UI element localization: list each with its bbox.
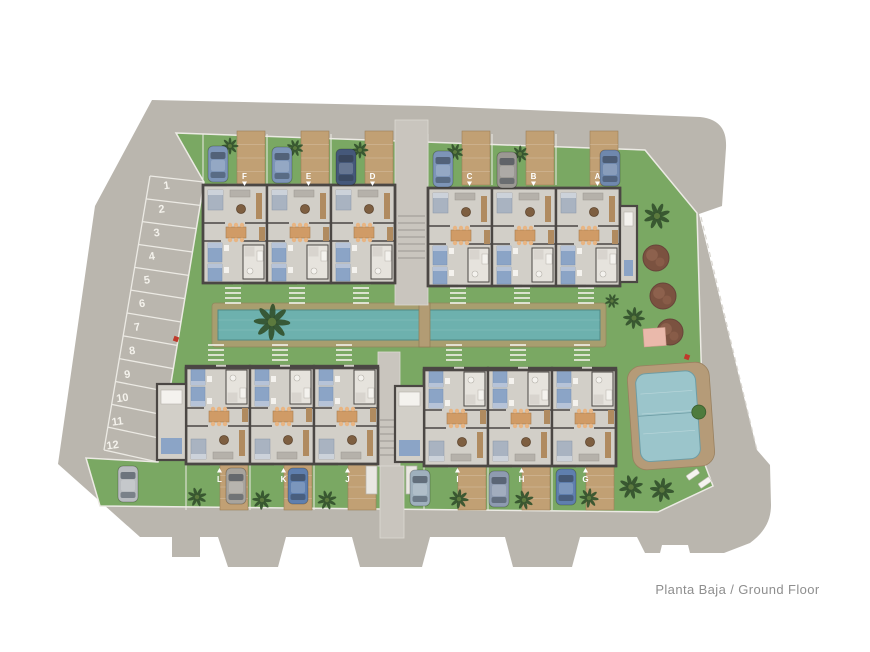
pool-bridge — [419, 303, 430, 347]
tv-cabinet — [481, 196, 487, 222]
central-walkway-bottom-neck — [380, 466, 404, 538]
bed-pillow — [493, 383, 507, 387]
tv-cabinet — [320, 193, 326, 219]
wing-bed — [399, 440, 420, 456]
dining-chair — [356, 238, 360, 242]
nightstand — [577, 248, 582, 254]
dining-chair — [529, 241, 533, 245]
nightstand — [271, 398, 276, 404]
dining-chair — [525, 409, 529, 413]
coffee-table — [458, 438, 467, 447]
dining-table — [451, 230, 471, 241]
dining-chair — [465, 241, 469, 245]
bed-pillow — [255, 401, 269, 406]
nightstand — [288, 267, 293, 273]
toilet — [311, 268, 317, 274]
tree-texture — [669, 331, 678, 340]
coffee-table — [237, 205, 246, 214]
toilet — [358, 375, 364, 381]
nightstand — [207, 398, 212, 404]
car-rear-window — [500, 178, 515, 184]
dining-chair — [461, 409, 465, 413]
car — [433, 151, 453, 187]
dining-chair — [287, 407, 291, 411]
dining-chair — [211, 422, 215, 426]
toilet — [536, 271, 542, 277]
dining-chair — [529, 226, 533, 230]
sink — [546, 254, 552, 264]
sofa — [230, 190, 250, 197]
wardrobe — [608, 410, 614, 424]
tv-cabinet — [303, 430, 309, 456]
dining-chair — [275, 422, 279, 426]
unit-a — [556, 187, 620, 287]
dining-table — [579, 230, 599, 241]
bed-pillow — [557, 456, 572, 461]
dining-chair — [453, 241, 457, 245]
dining-chair — [240, 238, 244, 242]
tree-texture — [655, 257, 664, 266]
floor-caption: Planta Baja / Ground Floor — [630, 582, 845, 597]
unit-g — [552, 367, 616, 467]
dining-chair — [461, 424, 465, 428]
unit-label: K — [281, 475, 287, 484]
unit-b — [492, 187, 556, 287]
dining-chair — [304, 238, 308, 242]
car-windshield — [339, 155, 354, 162]
bed-pillow — [319, 381, 333, 385]
nightstand — [573, 378, 578, 384]
round-tree-icon — [643, 245, 669, 271]
coffee-table — [526, 208, 535, 217]
wardrobe — [323, 227, 329, 241]
car-windshield — [559, 475, 574, 482]
car-roof — [229, 482, 243, 493]
shower — [245, 247, 255, 257]
shower — [356, 393, 366, 403]
car-rear-window — [229, 494, 244, 500]
tv-cabinet — [256, 193, 262, 219]
bed-pillow — [557, 403, 571, 408]
dining-chair — [449, 409, 453, 413]
dining-chair — [281, 422, 285, 426]
dining-chair — [523, 241, 527, 245]
wing-bed — [624, 260, 633, 276]
shower — [228, 393, 238, 403]
dining-table — [575, 413, 595, 424]
dining-chair — [581, 241, 585, 245]
nightstand — [445, 378, 450, 384]
dining-chair — [287, 422, 291, 426]
dining-chair — [593, 226, 597, 230]
coffee-table — [462, 208, 471, 217]
car — [600, 150, 620, 186]
car — [336, 149, 356, 185]
car-rear-window — [436, 177, 451, 183]
dining-chair — [519, 424, 523, 428]
sink — [368, 388, 374, 398]
car-windshield — [603, 156, 618, 163]
car — [272, 147, 292, 183]
nightstand — [509, 378, 514, 384]
play-area — [643, 327, 666, 346]
coffee-table — [522, 438, 531, 447]
wardrobe — [480, 410, 486, 424]
sofa — [358, 190, 378, 197]
wardrobe — [387, 227, 393, 241]
nightstand — [224, 267, 229, 273]
bed-pillow — [561, 246, 575, 251]
car-rear-window — [603, 176, 618, 182]
sink — [606, 390, 612, 400]
dining-chair — [223, 407, 227, 411]
nightstand — [513, 270, 518, 276]
unit-e — [267, 184, 331, 284]
sink — [478, 390, 484, 400]
shower — [534, 250, 544, 260]
dining-chair — [583, 424, 587, 428]
shower — [594, 395, 604, 405]
car-roof — [211, 160, 225, 171]
dining-chair — [517, 226, 521, 230]
bed-pillow — [208, 264, 222, 268]
dining-table — [209, 411, 229, 422]
car-roof — [603, 164, 617, 175]
bed-pillow — [272, 243, 286, 248]
unit-label: C — [467, 172, 473, 181]
dining-chair — [362, 223, 366, 227]
bed-pillow — [336, 190, 351, 195]
dining-chair — [217, 422, 221, 426]
bed-pillow — [191, 381, 205, 385]
car-roof — [275, 161, 289, 172]
sofa — [579, 454, 599, 461]
dining-chair — [587, 241, 591, 245]
unit-l — [186, 365, 250, 465]
bed-pillow — [255, 381, 269, 385]
car — [288, 468, 308, 504]
dining-chair — [513, 424, 517, 428]
car-windshield — [275, 153, 290, 160]
tree-texture — [662, 295, 671, 304]
car — [489, 471, 509, 507]
car-rear-window — [413, 496, 428, 502]
toilet — [230, 375, 236, 381]
dining-chair — [304, 223, 308, 227]
bed-pillow — [561, 193, 576, 198]
coffee-table — [220, 436, 229, 445]
unit-label: G — [582, 475, 588, 484]
wardrobe — [612, 230, 618, 244]
bed-pillow — [429, 383, 443, 387]
dining-chair — [587, 226, 591, 230]
sofa — [515, 454, 535, 461]
car-roof — [436, 165, 450, 176]
wardrobe — [370, 408, 376, 422]
tree-texture — [646, 249, 658, 261]
car-windshield — [500, 158, 515, 165]
bed-pillow — [433, 267, 447, 271]
bed-pillow — [493, 456, 508, 461]
car-rear-window — [275, 173, 290, 179]
unit-label: L — [217, 475, 222, 484]
dining-table — [515, 230, 535, 241]
tv-cabinet — [477, 432, 483, 458]
dining-chair — [519, 409, 523, 413]
toilet — [468, 377, 474, 383]
coffee-table — [586, 438, 595, 447]
tv-cabinet — [384, 193, 390, 219]
toilet — [294, 375, 300, 381]
wing-bed — [161, 438, 182, 454]
bed-pillow — [497, 193, 512, 198]
block-ihg — [395, 367, 616, 467]
dining-chair — [577, 424, 581, 428]
dining-chair — [234, 223, 238, 227]
dining-chair — [228, 238, 232, 242]
coffee-table — [301, 205, 310, 214]
wing-fixture — [624, 212, 633, 226]
sink — [542, 390, 548, 400]
bed-pillow — [272, 190, 287, 195]
dining-chair — [339, 407, 343, 411]
bed-pillow — [429, 456, 444, 461]
bed-pillow — [336, 243, 350, 248]
unit-label: H — [519, 475, 525, 484]
car-rear-window — [339, 175, 354, 181]
nightstand — [352, 267, 357, 273]
nightstand — [335, 376, 340, 382]
unit-label: D — [370, 172, 376, 181]
unit-k — [250, 365, 314, 465]
pool-plant — [691, 405, 706, 420]
dining-chair — [356, 223, 360, 227]
dining-chair — [292, 223, 296, 227]
dining-chair — [583, 409, 587, 413]
tv-cabinet — [367, 430, 373, 456]
shower — [466, 395, 476, 405]
bed-pillow — [255, 454, 270, 459]
bed-pillow — [208, 243, 222, 248]
coffee-table — [348, 436, 357, 445]
car-roof — [492, 485, 506, 496]
dining-chair — [517, 241, 521, 245]
bed-pillow — [319, 454, 334, 459]
unit-i — [424, 367, 488, 467]
nightstand — [509, 400, 514, 406]
tree-texture — [653, 287, 665, 299]
dining-chair — [465, 226, 469, 230]
central-walkway-top — [395, 120, 428, 305]
car-roof — [291, 482, 305, 493]
nightstand — [335, 398, 340, 404]
dining-table — [447, 413, 467, 424]
sink — [321, 251, 327, 261]
wardrobe — [259, 227, 265, 241]
block-cba — [428, 187, 637, 287]
sofa — [451, 454, 471, 461]
car-rear-window — [121, 492, 136, 498]
unit-label: F — [242, 172, 247, 181]
nightstand — [449, 270, 454, 276]
bed-pillow — [336, 264, 350, 268]
dining-chair — [223, 422, 227, 426]
sink — [257, 251, 263, 261]
bed-pillow — [429, 403, 443, 408]
dining-chair — [455, 424, 459, 428]
nightstand — [449, 248, 454, 254]
bed-pillow — [433, 193, 448, 198]
nightstand — [352, 245, 357, 251]
dining-chair — [234, 238, 238, 242]
bed-pillow — [191, 401, 205, 406]
sink — [610, 254, 616, 264]
unit-label: I — [456, 475, 458, 484]
bed-pillow — [191, 454, 206, 459]
dining-chair — [351, 422, 355, 426]
nightstand — [224, 245, 229, 251]
toilet — [600, 271, 606, 277]
dining-chair — [292, 238, 296, 242]
dining-chair — [453, 226, 457, 230]
dining-chair — [298, 223, 302, 227]
toilet — [247, 268, 253, 274]
shower — [530, 395, 540, 405]
sofa — [341, 452, 361, 459]
block-fed — [203, 184, 395, 284]
dining-chair — [351, 407, 355, 411]
sink — [240, 388, 246, 398]
car-roof — [121, 480, 135, 491]
parking-space-number: 10 — [116, 392, 130, 406]
sofa — [455, 193, 475, 200]
car — [497, 152, 517, 188]
car-windshield — [121, 472, 136, 479]
block-lkj — [157, 365, 378, 465]
dining-chair — [589, 424, 593, 428]
unit-c — [428, 187, 492, 287]
dining-chair — [455, 409, 459, 413]
bed-pillow — [272, 264, 286, 268]
car — [226, 468, 246, 504]
wardrobe — [306, 408, 312, 422]
wing-fixture — [399, 392, 420, 406]
coffee-table — [365, 205, 374, 214]
dining-chair — [513, 409, 517, 413]
car-windshield — [413, 476, 428, 483]
dining-chair — [593, 241, 597, 245]
unit-label: E — [306, 172, 312, 181]
bed-pillow — [433, 246, 447, 251]
shower — [470, 250, 480, 260]
sofa — [213, 452, 233, 459]
floor-plan-page: 123456789101112 FEDCBALKJIHG Planta Baja… — [0, 0, 870, 652]
car-rear-window — [559, 495, 574, 501]
dining-chair — [577, 409, 581, 413]
bed-pillow — [497, 267, 511, 271]
unit-j — [314, 365, 378, 465]
bed-pillow — [497, 246, 511, 251]
coffee-table — [590, 208, 599, 217]
sink — [482, 254, 488, 264]
communal-pool — [626, 361, 715, 470]
tv-cabinet — [239, 430, 245, 456]
bed-pillow — [319, 401, 333, 406]
floor-plan-svg: 123456789101112 FEDCBALKJIHG — [0, 0, 870, 652]
dining-chair — [211, 407, 215, 411]
nightstand — [271, 376, 276, 382]
dining-chair — [345, 422, 349, 426]
dining-table — [337, 411, 357, 422]
dining-chair — [525, 424, 529, 428]
dining-table — [290, 227, 310, 238]
bed-pillow — [208, 190, 223, 195]
car — [118, 466, 138, 502]
sink — [385, 251, 391, 261]
bed-pillow — [493, 403, 507, 408]
car-rear-window — [492, 497, 507, 503]
car-windshield — [211, 152, 226, 159]
coffee-table — [284, 436, 293, 445]
dining-chair — [217, 407, 221, 411]
dining-chair — [459, 226, 463, 230]
dining-table — [273, 411, 293, 422]
toilet — [472, 271, 478, 277]
nightstand — [573, 400, 578, 406]
parking-space-number: 11 — [111, 415, 124, 429]
dining-chair — [523, 226, 527, 230]
dining-chair — [281, 407, 285, 411]
sink — [304, 388, 310, 398]
unit-f — [203, 184, 267, 284]
car-roof — [559, 483, 573, 494]
toilet — [596, 377, 602, 383]
round-tree-icon — [650, 283, 676, 309]
dining-table — [354, 227, 374, 238]
sofa — [294, 190, 314, 197]
tv-cabinet — [605, 432, 611, 458]
dining-chair — [449, 424, 453, 428]
car-windshield — [229, 474, 244, 481]
wardrobe — [544, 410, 550, 424]
dining-chair — [298, 238, 302, 242]
wardrobe — [484, 230, 490, 244]
dining-chair — [368, 223, 372, 227]
dining-chair — [368, 238, 372, 242]
car-roof — [339, 163, 353, 174]
bed-pillow — [561, 267, 575, 271]
car — [208, 146, 228, 182]
palm-center — [228, 144, 232, 148]
car-rear-window — [211, 172, 226, 178]
unit-d — [331, 184, 395, 284]
dining-chair — [275, 407, 279, 411]
unit-h — [488, 367, 552, 467]
dining-chair — [345, 407, 349, 411]
dining-chair — [228, 223, 232, 227]
car-rear-window — [291, 494, 306, 500]
utility-pad — [366, 466, 377, 494]
nightstand — [288, 245, 293, 251]
tv-cabinet — [545, 196, 551, 222]
dining-table — [511, 413, 531, 424]
car — [410, 470, 430, 506]
nightstand — [577, 270, 582, 276]
shower — [373, 247, 383, 257]
parking-space-number: 12 — [106, 439, 120, 453]
dining-chair — [339, 422, 343, 426]
bed-pillow — [557, 383, 571, 387]
